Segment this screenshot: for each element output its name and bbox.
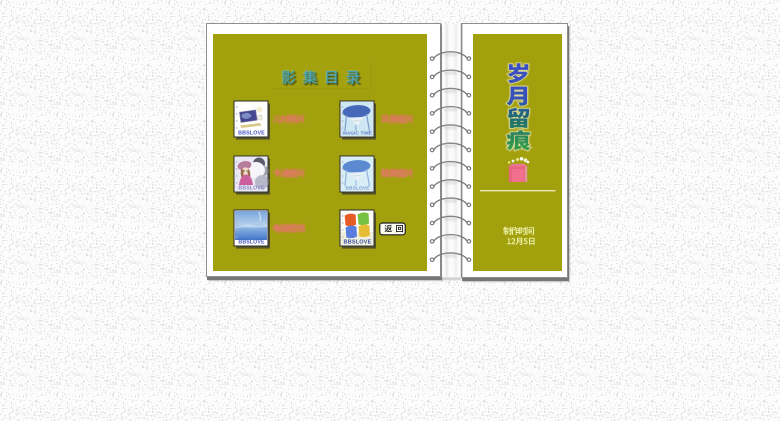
svg-text:BBSLOVE: BBSLOVE xyxy=(238,130,265,136)
svg-text:MAGIC TIME: MAGIC TIME xyxy=(343,130,372,135)
svg-text:BBSLOVE: BBSLOVE xyxy=(345,185,370,191)
svg-text:BBSLOVE: BBSLOVE xyxy=(343,239,371,245)
svg-text:BBSLOVE: BBSLOVE xyxy=(238,185,265,191)
svg-text:BBSLOVE: BBSLOVE xyxy=(238,239,265,245)
